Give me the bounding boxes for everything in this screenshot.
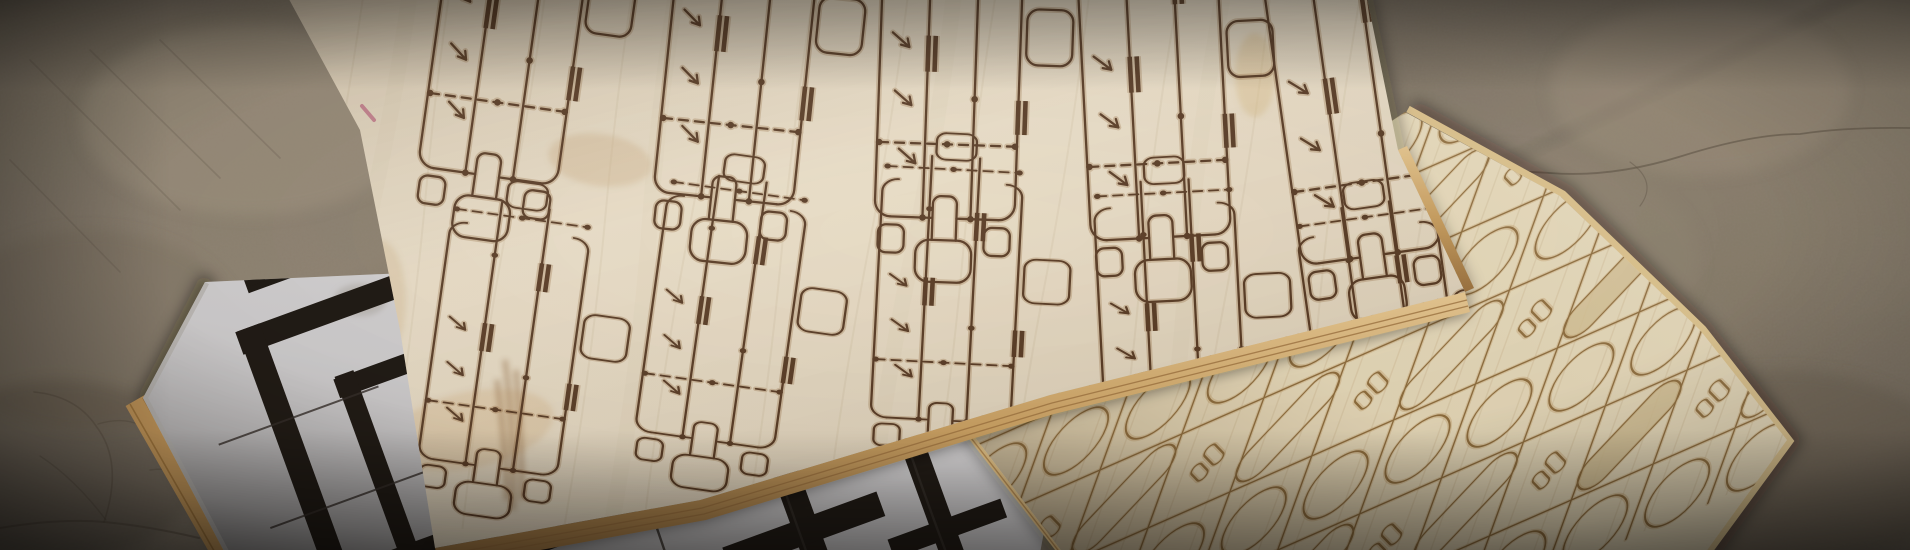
vignette-overlay bbox=[0, 0, 1910, 550]
workshop-photo bbox=[0, 0, 1910, 550]
laser-cut-boards-photo bbox=[0, 0, 1910, 550]
